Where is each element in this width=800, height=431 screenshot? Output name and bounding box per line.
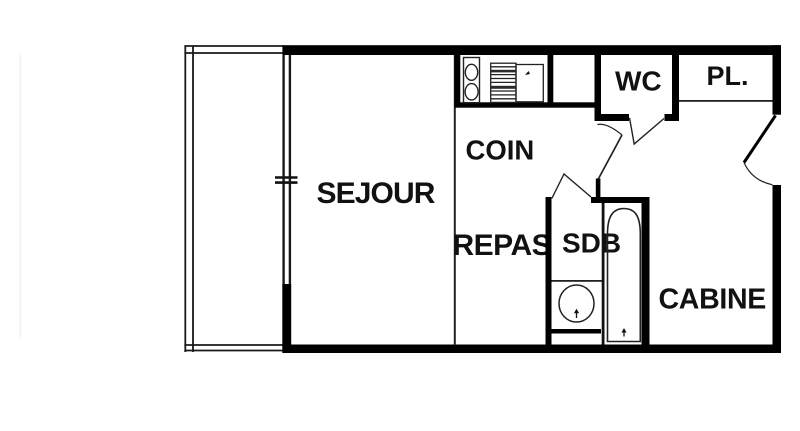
svg-text:COIN: COIN xyxy=(466,135,535,166)
svg-text:WC: WC xyxy=(615,66,662,97)
svg-text:CABINE: CABINE xyxy=(659,284,766,316)
svg-text:SEJOUR: SEJOUR xyxy=(317,177,436,210)
svg-text:PL.: PL. xyxy=(707,61,749,91)
svg-text:SDB: SDB xyxy=(562,228,621,259)
svg-text:REPAS: REPAS xyxy=(453,229,552,262)
